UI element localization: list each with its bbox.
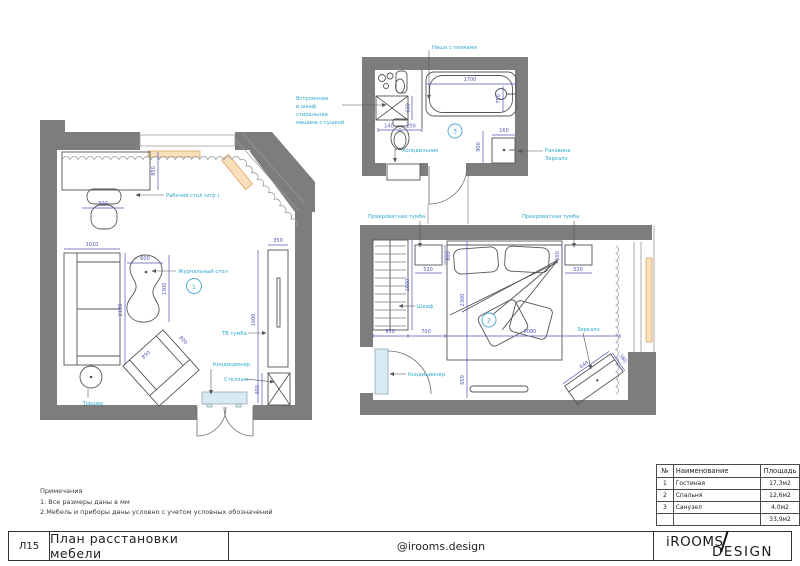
window-sill-highlight-bed [646, 258, 652, 342]
label-coffee-table: Журнальный стол [178, 268, 228, 275]
room-marker-living: 1 [187, 279, 202, 294]
label-ac: Кондиционер [213, 362, 251, 368]
bed-walls [360, 225, 656, 415]
nightstand-left [415, 245, 442, 265]
dim-sofa-width: 1010 [86, 242, 99, 248]
room-marker-bath: 3 [448, 124, 462, 138]
row-name: Гостиная [673, 478, 760, 490]
bathroom-plan: 1700 750 600 140 200 900 160 Ниша с полк… [296, 45, 571, 224]
dim-bed-zone: 2080 [524, 329, 537, 335]
dim-nightstand-right-d: 600 [555, 251, 561, 261]
row-area: 4,0м2 [761, 502, 800, 514]
row-name: Санузел [673, 502, 760, 514]
desk [62, 152, 150, 190]
table-total-row: 33,9м2 [657, 514, 800, 526]
row-area: 12,6м2 [761, 490, 800, 502]
dim-table-width: 600 [140, 256, 150, 262]
dim-sink-wall: 900 [476, 142, 482, 152]
dim-sofa-length: 2120 [118, 304, 124, 317]
table-row: 1 Гостиная 17,3м2 [657, 478, 800, 490]
dim-table-length: 1300 [162, 283, 168, 296]
room-marker-bedroom: 2 [482, 313, 496, 327]
dim-bed-foot: 650 [460, 375, 466, 385]
label-nightstand-left: Прикроватная тумба [368, 214, 425, 220]
notes-block: Примечания 1. Все размеры даны в мм 2.Ме… [40, 486, 273, 518]
label-tv: ТВ тумба [221, 331, 247, 337]
dim-shelf: 400 [255, 385, 261, 395]
floor-lamp [80, 366, 102, 388]
col-num: № [657, 465, 674, 478]
sheet-number: Л15 [9, 532, 49, 560]
studio-logo: iROOMS / DESIGN [653, 532, 791, 560]
dim-nightstand-right-w: 520 [573, 267, 583, 273]
col-area: Площадь [761, 465, 800, 478]
dim-chair: 500 [98, 201, 108, 207]
curtain-line-bed [616, 246, 618, 394]
bedroom-plan: 640 360 1600 950 700 2080 520 600 520 [360, 214, 656, 415]
label-nightstand-right: Прикроватная тумба [522, 214, 579, 220]
ac-unit-living [202, 392, 247, 407]
bath-door [428, 166, 468, 224]
label-fridge: Холодильник [402, 148, 438, 154]
notes-heading: Примечания [40, 486, 273, 497]
blanket [450, 260, 558, 330]
notes-line-1: 1. Все размеры даны в мм [40, 497, 273, 508]
label-washer-3: стиральная [296, 112, 328, 118]
label-shelf: Стеллаж [224, 377, 249, 383]
drawing-sheet: 500 850 1010 2120 600 1300 800 850 350 1… [0, 0, 800, 566]
label-mirror: Зеркало [577, 327, 600, 333]
svg-text:3: 3 [453, 128, 457, 136]
nightstand-right [565, 245, 592, 265]
dim-tv-stand: 350 [273, 238, 283, 244]
window-sill-highlight [148, 151, 200, 157]
dim-wc-2: 200 [406, 124, 416, 130]
table-row: 3 Санузел 4,0м2 [657, 502, 800, 514]
fridge [387, 164, 420, 180]
dim-bed-length: 2300 [460, 294, 466, 307]
sofa [64, 253, 120, 365]
table-row: 2 Спальня 12,6м2 [657, 490, 800, 502]
area-table: № Наименование Площадь 1 Гостиная 17,3м2… [656, 464, 800, 526]
dim-washer: 600 [406, 103, 412, 113]
col-name: Наименование [673, 465, 760, 478]
tv [277, 278, 280, 327]
shelf-unit [268, 373, 290, 405]
notes-line-2: 2.Мебель и приборы даны условно с учетом… [40, 507, 273, 518]
pillow-left [453, 246, 499, 274]
row-num: 3 [657, 502, 674, 514]
dim-armchair-depth: 850 [141, 350, 152, 361]
row-area: 17,3м2 [761, 478, 800, 490]
dim-nightstand-left-w: 520 [423, 267, 433, 273]
row-num: 1 [657, 478, 674, 490]
ac-unit-bedroom [375, 349, 388, 394]
washing-machine [376, 96, 408, 120]
coffee-table [127, 255, 162, 322]
bath-shelves [379, 71, 408, 93]
tv-stand [268, 250, 288, 367]
dim-wardrobe: 950 [385, 329, 395, 335]
window-sill-highlight-diagonal [222, 154, 253, 189]
living-room-plan: 500 850 1010 2120 600 1300 800 850 350 1… [40, 120, 315, 436]
svg-text:1: 1 [192, 283, 196, 291]
dim-tub-length: 1700 [464, 77, 477, 83]
dim-mirror-w: 640 [579, 360, 590, 370]
sink-cabinet [492, 138, 515, 163]
area-table-header: № Наименование Площадь [657, 465, 800, 478]
total-num [657, 514, 674, 526]
title-bar: Л15 План расстановки мебели @irooms.desi… [8, 531, 792, 561]
desk-chair [87, 189, 121, 229]
label-washer-2: в шкаф [296, 104, 317, 110]
drawing-title: План расстановки мебели [49, 532, 228, 560]
dim-desk: 850 [151, 166, 157, 176]
label-washer-4: машина с сушкой [296, 119, 344, 126]
bed-window [634, 226, 654, 352]
dim-gap: 700 [421, 329, 431, 335]
dim-sink: 160 [499, 128, 509, 134]
label-ac-bedroom: Кондиционер [408, 372, 446, 378]
living-labels: Рабочий стол (игр.) Журнальный стол ТВ т… [82, 192, 274, 407]
wardrobe [373, 240, 408, 330]
label-mirror-bath: Зеркало [545, 156, 568, 162]
label-wardrobe: Шкаф [417, 304, 434, 310]
dim-tub-width: 750 [496, 94, 502, 104]
label-washer-1: Встроенная [296, 96, 328, 102]
label-sink: Раковина [545, 148, 571, 154]
dim-wc-1: 140 [384, 124, 394, 130]
dim-tv-wall: 1600 [251, 314, 257, 327]
dim-nightstand-left-d: 600 [446, 251, 452, 261]
mirror: 640 360 [560, 341, 632, 404]
svg-text:2: 2 [487, 317, 491, 325]
label-desk: Рабочий стол (игр.) [166, 192, 219, 199]
label-niche: Ниша с полками [432, 45, 477, 51]
bench [470, 386, 528, 392]
dim-wardrobe-length: 1600 [405, 279, 411, 292]
row-name: Спальня [673, 490, 760, 502]
total-name [673, 514, 760, 526]
studio-handle: @irooms.design [228, 532, 653, 560]
logo-text-bottom: DESIGN [712, 544, 773, 560]
dim-armchair-width: 800 [177, 335, 188, 346]
total-area: 33,9м2 [761, 514, 800, 526]
label-lamp: Торшер [82, 401, 105, 407]
balcony-doors [197, 407, 253, 436]
row-num: 2 [657, 490, 674, 502]
